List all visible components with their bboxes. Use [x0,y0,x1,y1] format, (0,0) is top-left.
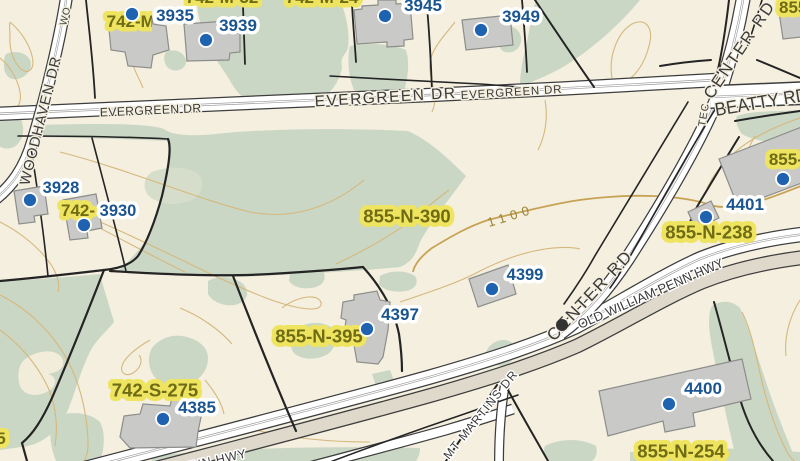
svg-text:4401: 4401 [726,195,764,214]
svg-text:5: 5 [0,429,6,448]
svg-text:855-N-390: 855-N-390 [363,206,450,227]
svg-text:3935: 3935 [156,6,194,25]
svg-text:3928: 3928 [43,179,80,197]
svg-text:742-M-24: 742-M-24 [286,0,359,7]
svg-text:3930: 3930 [100,202,137,220]
svg-text:4385: 4385 [178,398,216,417]
svg-text:3949: 3949 [502,7,540,26]
svg-text:4400: 4400 [684,379,722,398]
svg-text:855-N: 855-N [769,150,800,169]
svg-text:4399: 4399 [507,266,544,284]
svg-text:855-: 855- [779,0,800,17]
svg-text:855-N-238: 855-N-238 [665,222,752,243]
svg-text:3939: 3939 [219,16,257,35]
svg-text:742-: 742- [61,201,95,220]
svg-text:855-N-254: 855-N-254 [637,441,725,461]
svg-text:855-N-395: 855-N-395 [275,326,362,347]
svg-text:742-M-52: 742-M-52 [186,0,259,7]
svg-text:4397: 4397 [381,305,419,324]
svg-text:3945: 3945 [404,0,442,15]
